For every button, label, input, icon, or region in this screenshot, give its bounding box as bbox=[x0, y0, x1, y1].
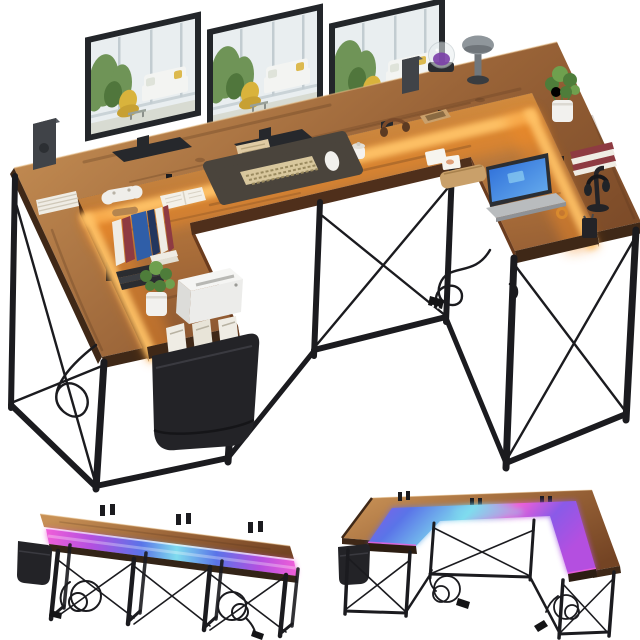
u-cables bbox=[430, 570, 579, 632]
thumbnail-u-led-view bbox=[338, 490, 621, 638]
storage-bag bbox=[152, 316, 259, 450]
main-product-view bbox=[10, 1, 640, 489]
monitor-1 bbox=[86, 15, 198, 138]
left-speaker bbox=[33, 118, 60, 170]
left-cable bbox=[56, 345, 96, 417]
storage-bag-front bbox=[17, 541, 52, 585]
dome-lamp bbox=[428, 42, 455, 72]
thumbnail-front-led-view bbox=[17, 504, 298, 640]
product-image bbox=[0, 0, 640, 640]
u-led-desktop bbox=[368, 501, 597, 582]
